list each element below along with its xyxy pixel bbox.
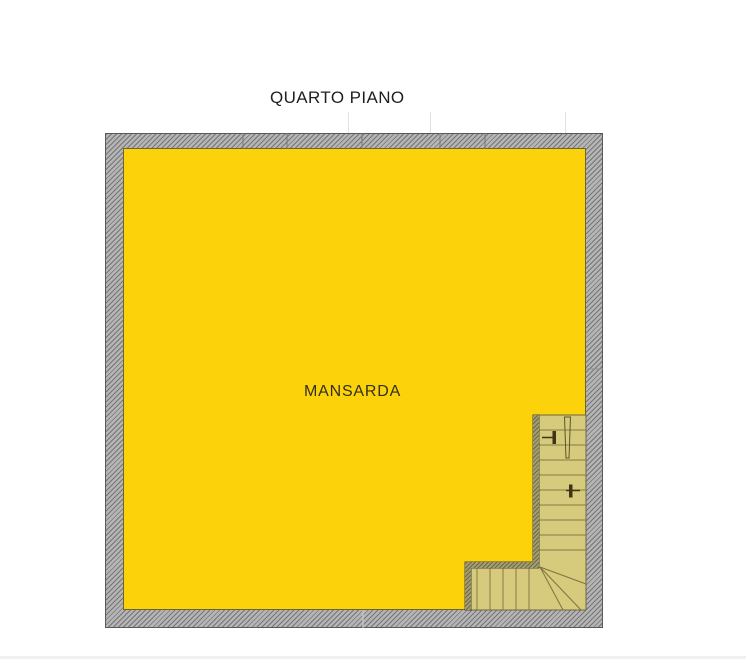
mansarda-room: MANSARDA — [123, 148, 586, 610]
roof-ridge-line — [348, 112, 349, 133]
roof-ridge-line — [430, 112, 431, 133]
room-label: MANSARDA — [304, 383, 401, 401]
page-edge-shadow — [0, 656, 746, 659]
floor-title: QUARTO PIANO — [270, 88, 405, 108]
roof-ridge-line — [565, 112, 566, 133]
floorplan-page: QUARTO PIANO MANSARDA — [0, 0, 746, 665]
